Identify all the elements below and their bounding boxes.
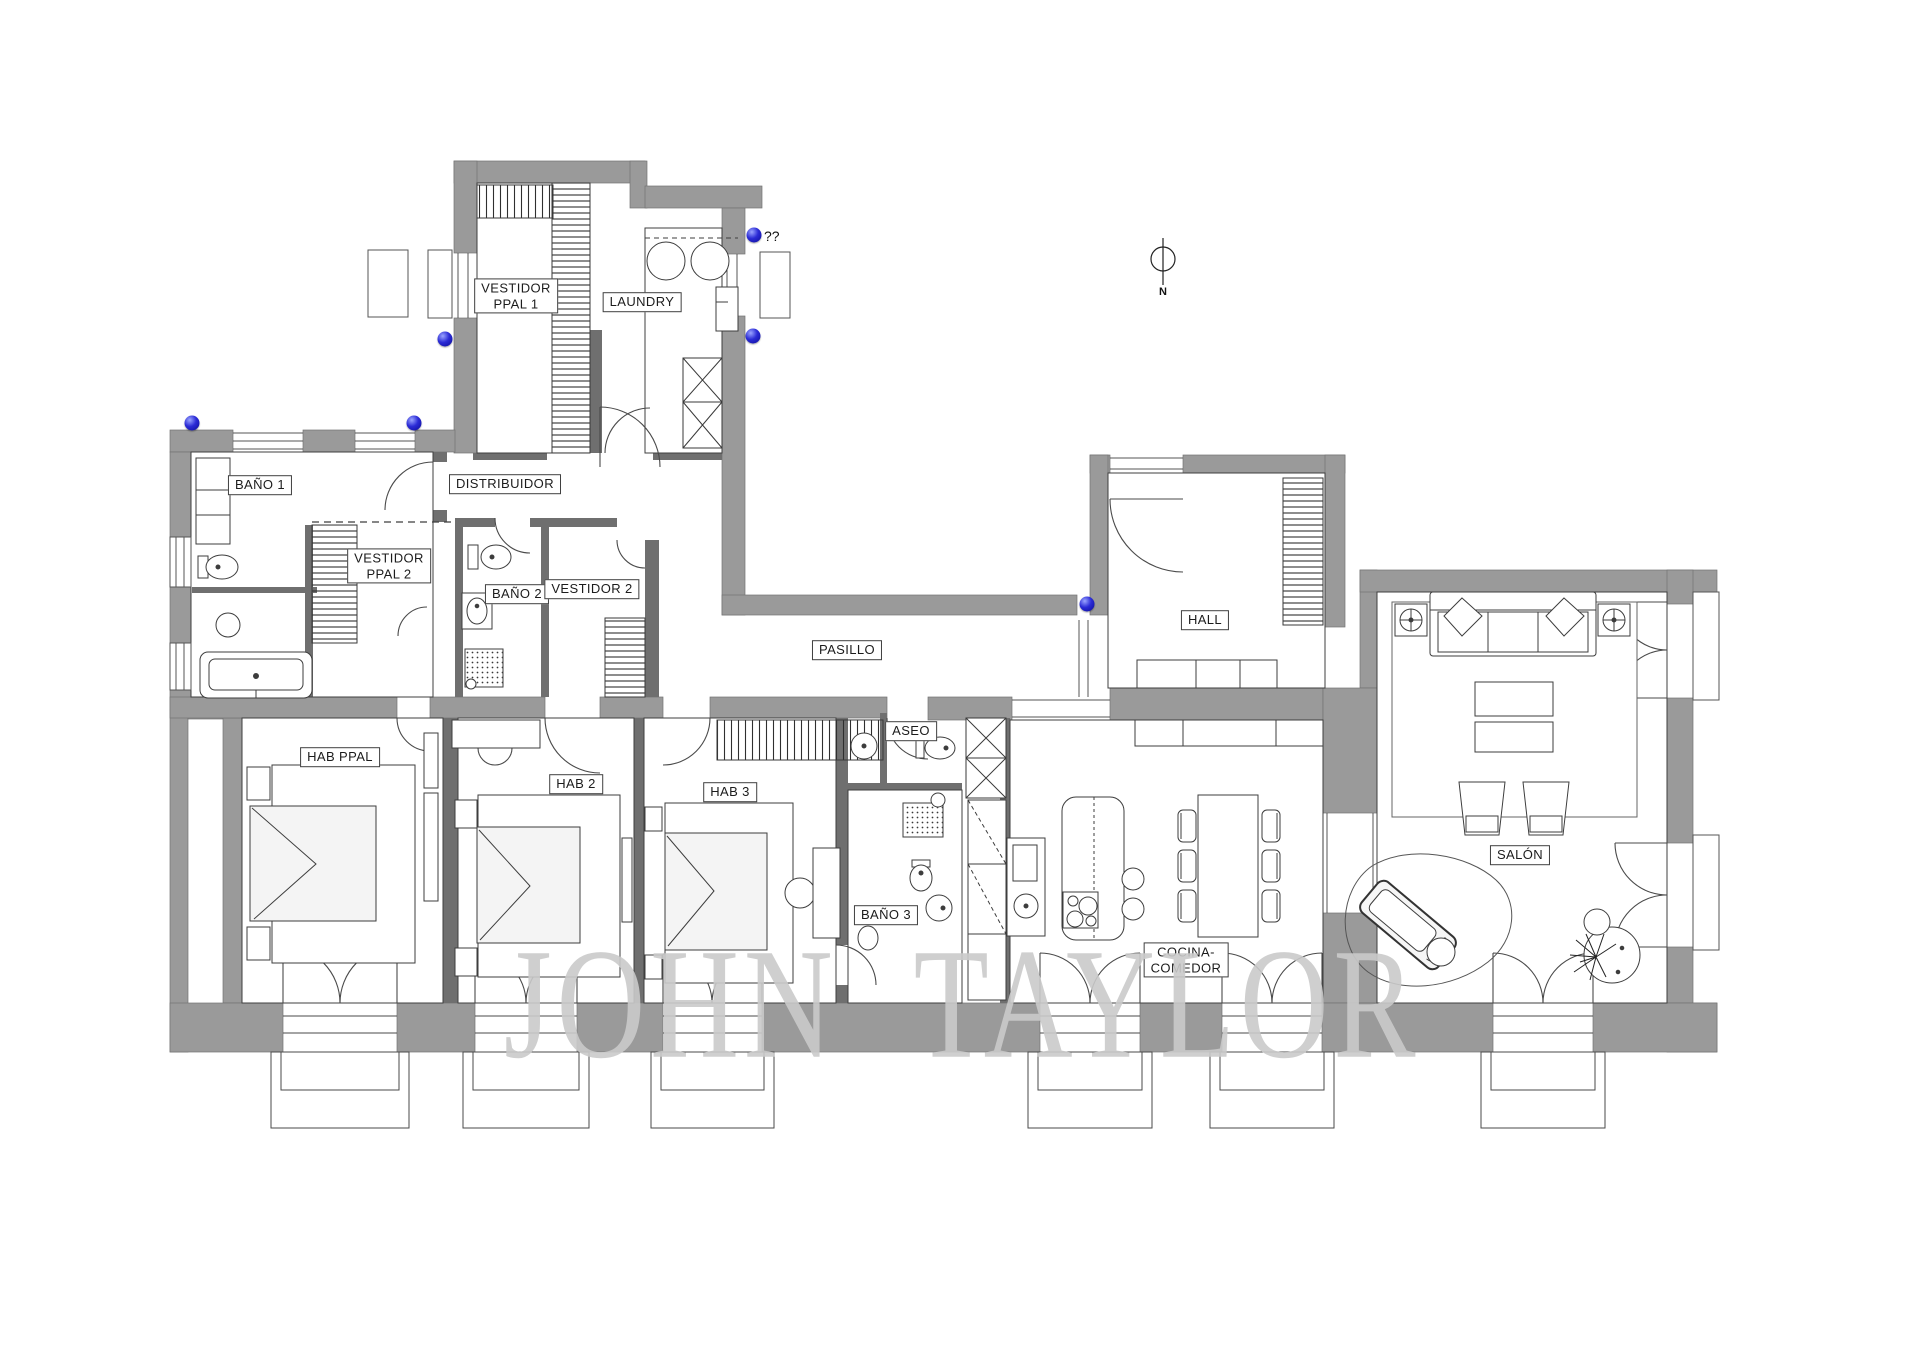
sink-icon xyxy=(926,895,952,921)
stool-icon xyxy=(216,613,240,637)
toilet-icon xyxy=(206,555,238,579)
mattress-icon xyxy=(665,833,767,950)
coffee-table-icon xyxy=(1475,722,1553,752)
blue-marker-icon xyxy=(747,228,762,243)
nightstand-icon xyxy=(645,955,662,979)
room-label-hab-ppal: HAB PPAL xyxy=(300,747,380,767)
side-table-icon xyxy=(1427,938,1455,966)
north-compass-icon xyxy=(1151,238,1175,285)
blue-marker-icon xyxy=(438,332,453,347)
floor-plan-canvas: VESTIDORPPAL 1 LAUNDRY BAÑO 1 DISTRIBUID… xyxy=(0,0,1920,1357)
washer-icon xyxy=(647,242,685,280)
room-label-bano-2: BAÑO 2 xyxy=(485,584,549,604)
blue-marker-icon xyxy=(1080,597,1095,612)
hall-bench xyxy=(1137,660,1277,688)
room-label-hab-2: HAB 2 xyxy=(549,774,603,794)
stool-icon xyxy=(1122,898,1144,920)
room-label-salon: SALÓN xyxy=(1490,845,1550,865)
wardrobe-hall-icon xyxy=(1283,478,1323,625)
blue-marker-icon xyxy=(746,329,761,344)
nightstand-icon xyxy=(247,767,270,800)
closet-icon xyxy=(452,720,540,748)
room-label-cocina-comedor: COCINA-COMEDOR xyxy=(1144,942,1229,977)
desk-icon xyxy=(813,848,840,938)
laundry-fixtures xyxy=(645,238,738,331)
room-label-hab-3: HAB 3 xyxy=(703,782,757,802)
toilet-icon xyxy=(910,865,932,891)
dining-set xyxy=(1178,795,1280,937)
room-label-hall: HALL xyxy=(1181,610,1229,630)
north-label: N xyxy=(1159,286,1167,298)
room-label-bano-3: BAÑO 3 xyxy=(854,905,918,925)
bed-hab-ppal xyxy=(247,765,415,963)
room-label-laundry: LAUNDRY xyxy=(603,292,682,312)
bed-hab-2 xyxy=(452,720,620,977)
nightstand-icon xyxy=(247,927,270,960)
plant-icon xyxy=(1570,909,1640,983)
nightstand-icon xyxy=(645,807,662,831)
nightstand-icon xyxy=(455,948,477,976)
room-label-bano-1: BAÑO 1 xyxy=(228,475,292,495)
bed-hab-3 xyxy=(645,803,840,983)
vanity-icon xyxy=(196,458,230,544)
room-label-vestidor-2: VESTIDOR 2 xyxy=(544,579,639,599)
bathroom3-fixtures xyxy=(858,793,952,950)
bidet-icon xyxy=(858,926,878,950)
appliance-icon xyxy=(716,287,738,331)
floor-plan-drawing xyxy=(0,0,1920,1357)
wardrobe-vestidor-ppal2-icon xyxy=(312,525,357,643)
wardrobe-vestidor2-icon xyxy=(605,618,645,697)
room-label-pasillo: PASILLO xyxy=(812,640,882,660)
desk-chair-icon xyxy=(785,878,815,908)
blue-marker-icon xyxy=(407,416,422,431)
toilet-icon xyxy=(481,545,511,569)
shower-icon xyxy=(903,803,943,837)
dryer-icon xyxy=(691,242,729,280)
wardrobe-vestidor1-column-icon xyxy=(552,183,590,453)
stool-icon xyxy=(1122,868,1144,890)
blue-marker-icon xyxy=(185,416,200,431)
room-label-aseo: ASEO xyxy=(885,721,937,741)
room-label-distribuidor: DISTRIBUIDOR xyxy=(449,474,561,494)
room-label-vestidor-ppal-1: VESTIDORPPAL 1 xyxy=(474,278,558,313)
wardrobe-vestidor1-top-icon xyxy=(477,185,553,218)
bathroom2-fixtures xyxy=(462,545,511,689)
coffee-table-icon xyxy=(1475,682,1553,716)
nightstand-icon xyxy=(455,800,477,828)
salon-furniture xyxy=(1345,592,1640,986)
dining-table-icon xyxy=(1198,795,1258,937)
question-marks-note: ?? xyxy=(764,228,780,244)
kitchen-counter-icon xyxy=(1135,720,1323,746)
room-label-vestidor-ppal-2: VESTIDORPPAL 2 xyxy=(347,548,431,583)
